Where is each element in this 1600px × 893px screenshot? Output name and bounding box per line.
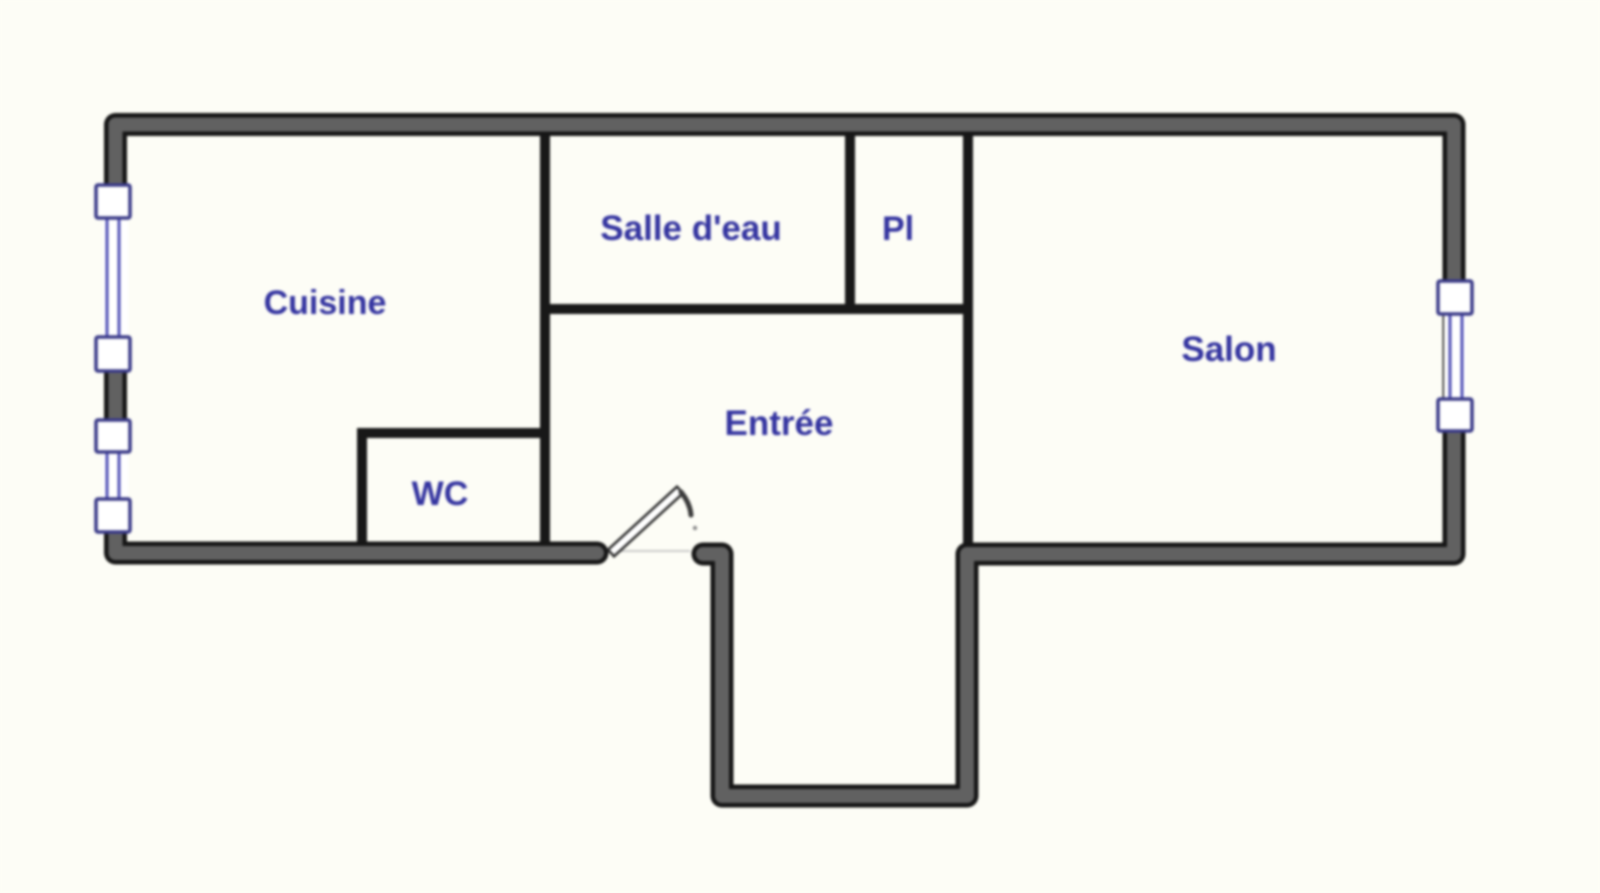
svg-text:Pl: Pl [882, 210, 914, 248]
svg-text:Salon: Salon [1181, 330, 1276, 369]
svg-text:Cuisine: Cuisine [264, 284, 387, 322]
svg-text:Salle d'eau: Salle d'eau [600, 209, 781, 248]
svg-text:WC: WC [412, 475, 469, 513]
svg-text:Entrée: Entrée [725, 404, 834, 443]
